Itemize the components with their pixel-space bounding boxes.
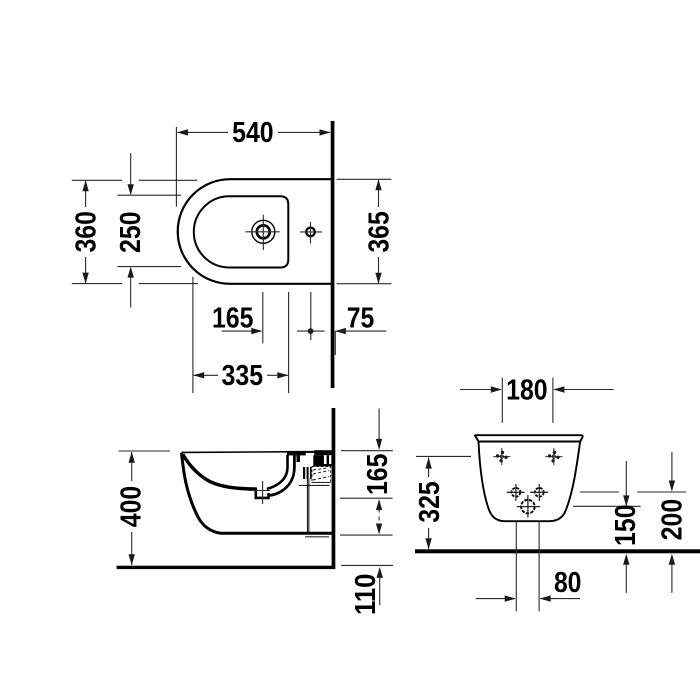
svg-text:365: 365 (363, 211, 395, 253)
svg-text:75: 75 (347, 302, 375, 334)
svg-text:180: 180 (506, 374, 548, 406)
svg-text:200: 200 (657, 499, 689, 541)
svg-text:325: 325 (414, 481, 446, 523)
svg-text:80: 80 (554, 567, 582, 599)
svg-text:360: 360 (70, 211, 102, 253)
svg-text:400: 400 (116, 486, 148, 528)
svg-text:540: 540 (232, 117, 274, 149)
svg-text:110: 110 (350, 574, 382, 616)
svg-text:165: 165 (362, 454, 394, 496)
svg-text:165: 165 (212, 302, 254, 334)
svg-text:150: 150 (610, 504, 642, 546)
svg-text:335: 335 (222, 360, 264, 392)
svg-text:250: 250 (115, 211, 147, 253)
